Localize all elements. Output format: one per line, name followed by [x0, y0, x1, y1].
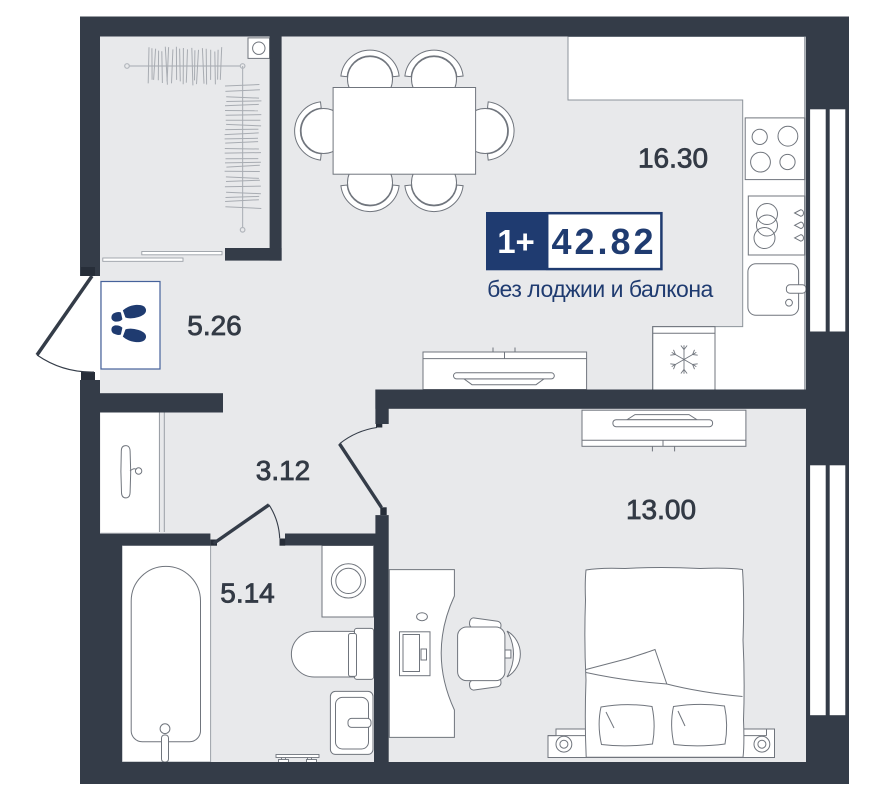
svg-text:5.26: 5.26: [187, 310, 242, 341]
svg-text:1+: 1+: [497, 223, 535, 260]
svg-text:13.00: 13.00: [626, 494, 696, 525]
svg-text:5.14: 5.14: [220, 578, 275, 609]
svg-text:без лоджии и балкона: без лоджии и балкона: [487, 276, 713, 302]
svg-text:16.30: 16.30: [638, 143, 708, 174]
svg-text:42.82: 42.82: [551, 221, 656, 262]
svg-text:3.12: 3.12: [256, 455, 311, 486]
